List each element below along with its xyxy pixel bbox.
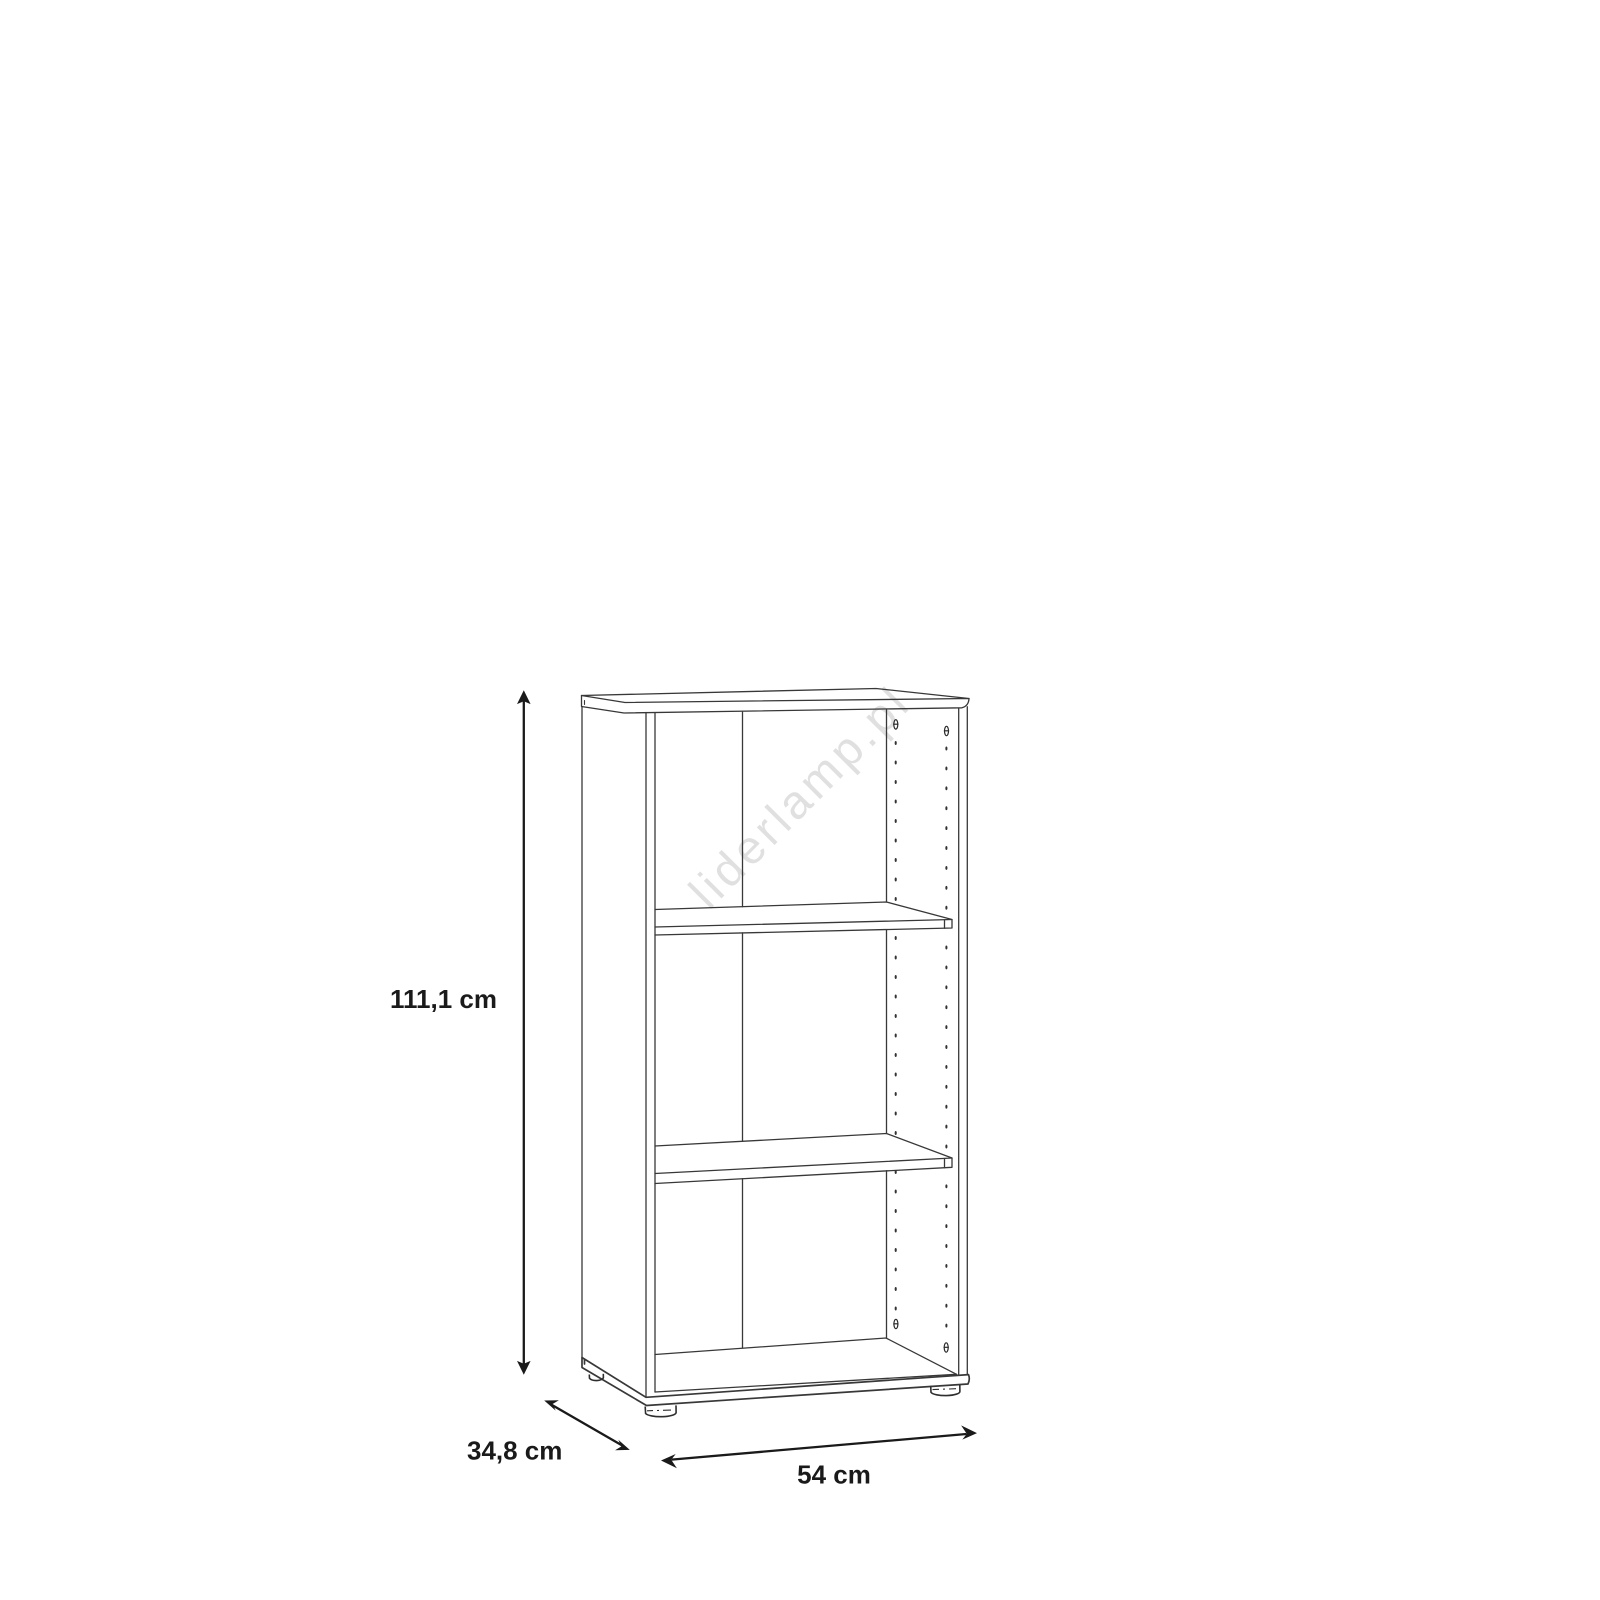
svg-text:34,8 cm: 34,8 cm bbox=[467, 1435, 562, 1465]
svg-text:54 cm: 54 cm bbox=[797, 1460, 871, 1490]
svg-text:111,1 cm: 111,1 cm bbox=[390, 984, 497, 1014]
